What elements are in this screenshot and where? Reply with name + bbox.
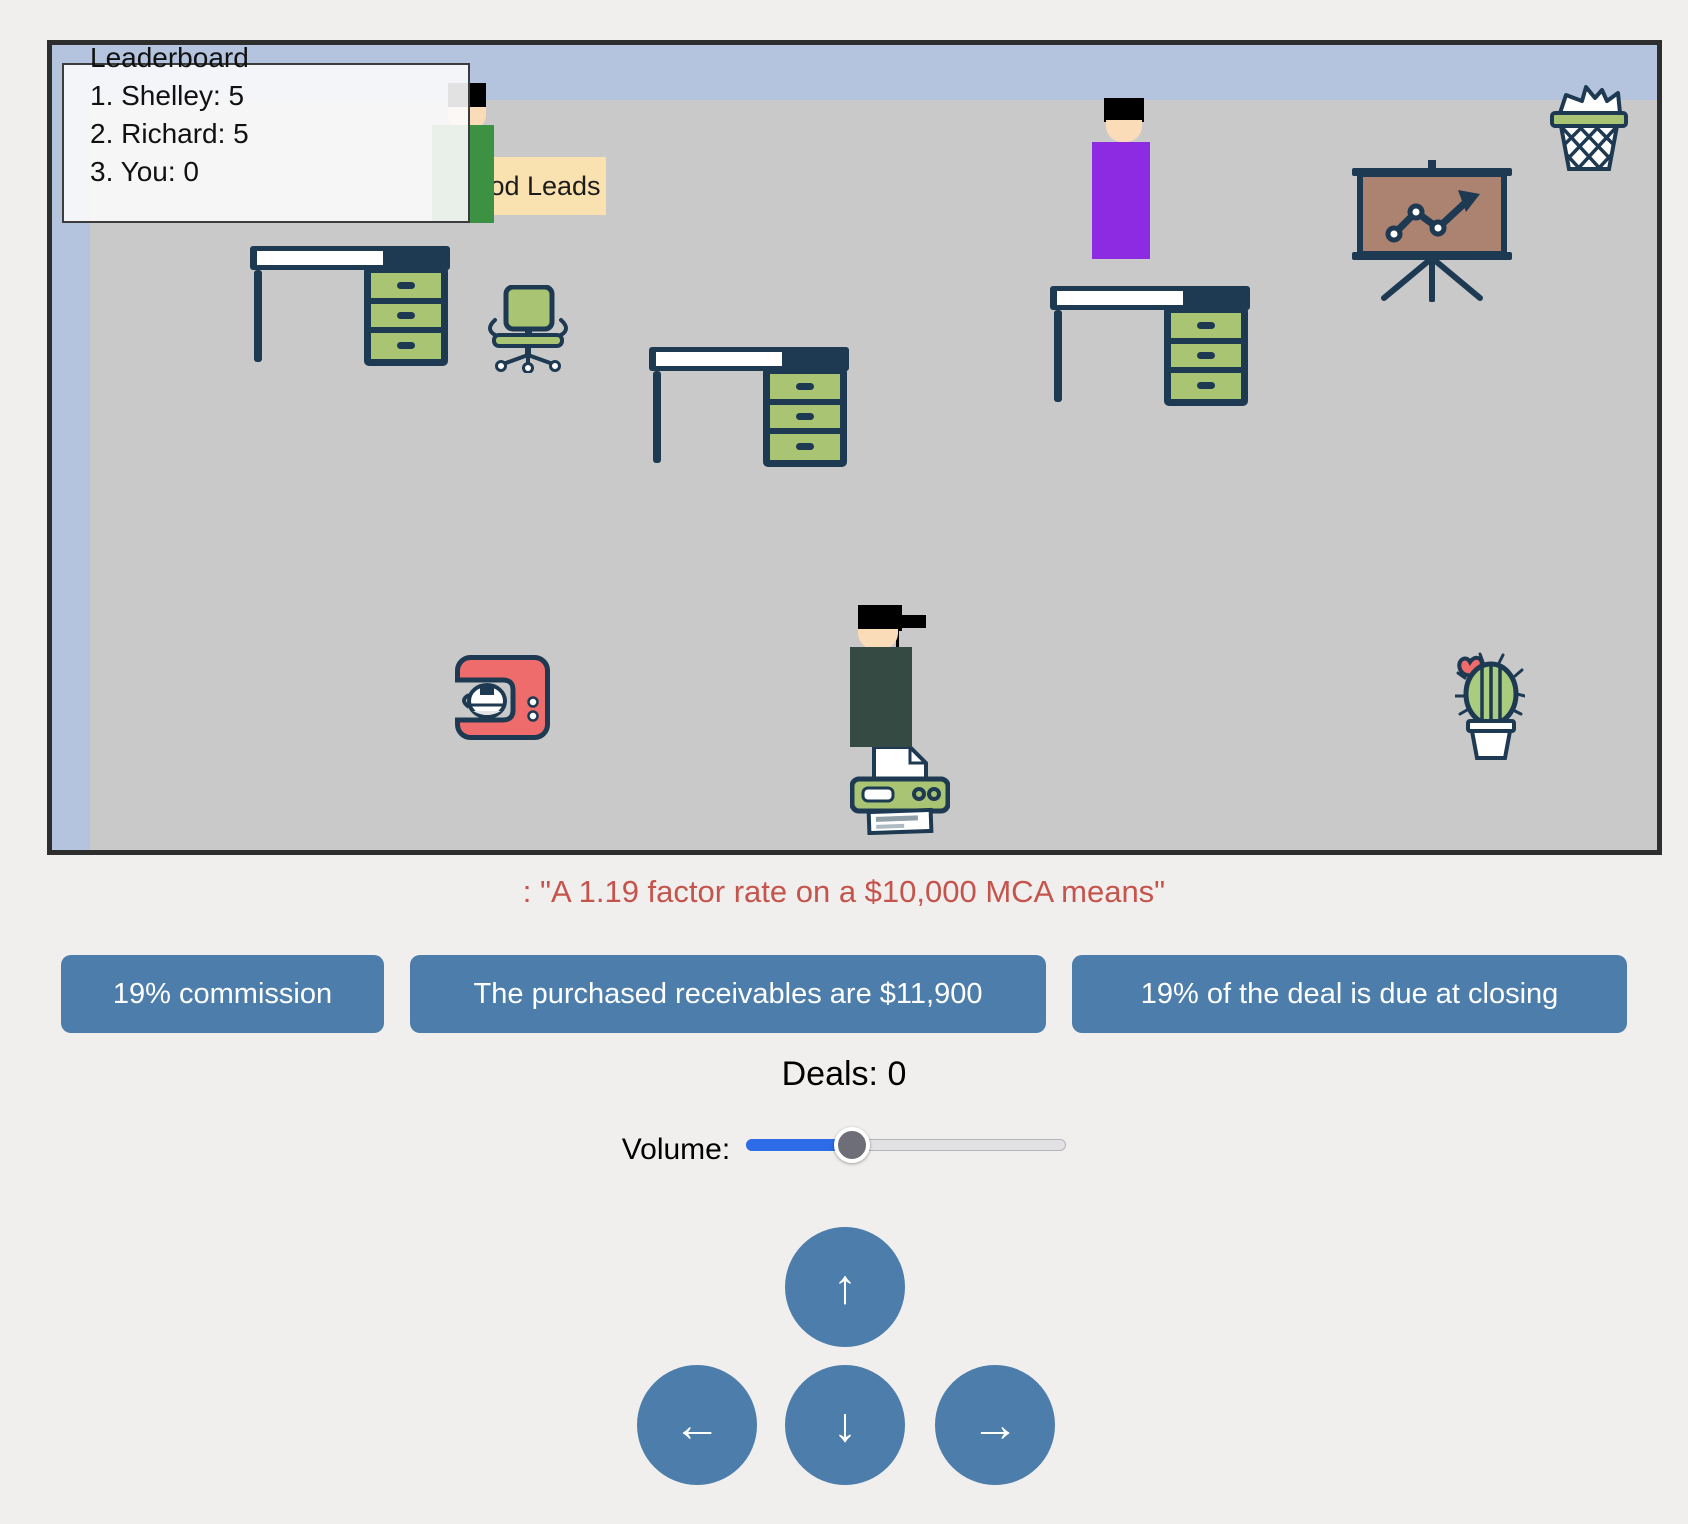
volume-row: Volume: xyxy=(0,1122,1688,1168)
left-arrow-icon: ← xyxy=(673,1398,721,1453)
leaderboard-title: Leaderboard xyxy=(90,40,468,77)
player-cap-visor xyxy=(900,615,926,628)
game-canvas[interactable]: Good Leads Leaderboard 1. Shelley: 5 2. … xyxy=(47,40,1662,855)
trash-can-icon xyxy=(1550,85,1628,173)
character-purple xyxy=(1092,98,1150,259)
answer-button-1[interactable]: 19% commission xyxy=(61,955,384,1033)
desk-icon xyxy=(649,347,849,467)
volume-label: Volume: xyxy=(622,1123,730,1167)
cactus-icon xyxy=(1455,650,1525,762)
player-body xyxy=(850,647,912,747)
down-arrow-icon: ↓ xyxy=(833,1398,857,1453)
character-purple-head xyxy=(1106,120,1142,142)
right-arrow-icon: → xyxy=(971,1398,1019,1453)
desk-icon xyxy=(250,246,450,366)
character-purple-hair xyxy=(1104,98,1144,122)
left-button[interactable]: ← xyxy=(637,1365,757,1485)
up-button[interactable]: ↑ xyxy=(785,1227,905,1347)
volume-slider[interactable] xyxy=(746,1127,1066,1163)
character-purple-body xyxy=(1092,142,1150,259)
leaderboard-entry: 2. Richard: 5 xyxy=(90,115,468,153)
printer-icon xyxy=(850,745,950,835)
answer-row: 19% commission The purchased receivables… xyxy=(0,955,1688,1033)
down-button[interactable]: ↓ xyxy=(785,1365,905,1485)
leaderboard-entry: 1. Shelley: 5 xyxy=(90,77,468,115)
player-character xyxy=(850,605,926,747)
presentation-board-icon xyxy=(1352,160,1512,302)
answer-button-3[interactable]: 19% of the deal is due at closing xyxy=(1072,955,1627,1033)
deals-counter: Deals: 0 xyxy=(0,1055,1688,1094)
volume-thumb[interactable] xyxy=(834,1127,870,1163)
desk-icon xyxy=(1050,286,1250,406)
player-head xyxy=(858,629,898,649)
page: Good Leads Leaderboard 1. Shelley: 5 2. … xyxy=(0,0,1688,1524)
leaderboard-entry: 3. You: 0 xyxy=(90,153,468,191)
office-chair-icon xyxy=(488,285,568,373)
right-button[interactable]: → xyxy=(935,1365,1055,1485)
quiz-prompt: : "A 1.19 factor rate on a $10,000 MCA m… xyxy=(0,874,1688,910)
up-arrow-icon: ↑ xyxy=(833,1260,857,1315)
coffee-machine-icon xyxy=(455,655,550,740)
answer-button-2[interactable]: The purchased receivables are $11,900 xyxy=(410,955,1046,1033)
leaderboard: Leaderboard 1. Shelley: 5 2. Richard: 5 … xyxy=(62,63,470,223)
